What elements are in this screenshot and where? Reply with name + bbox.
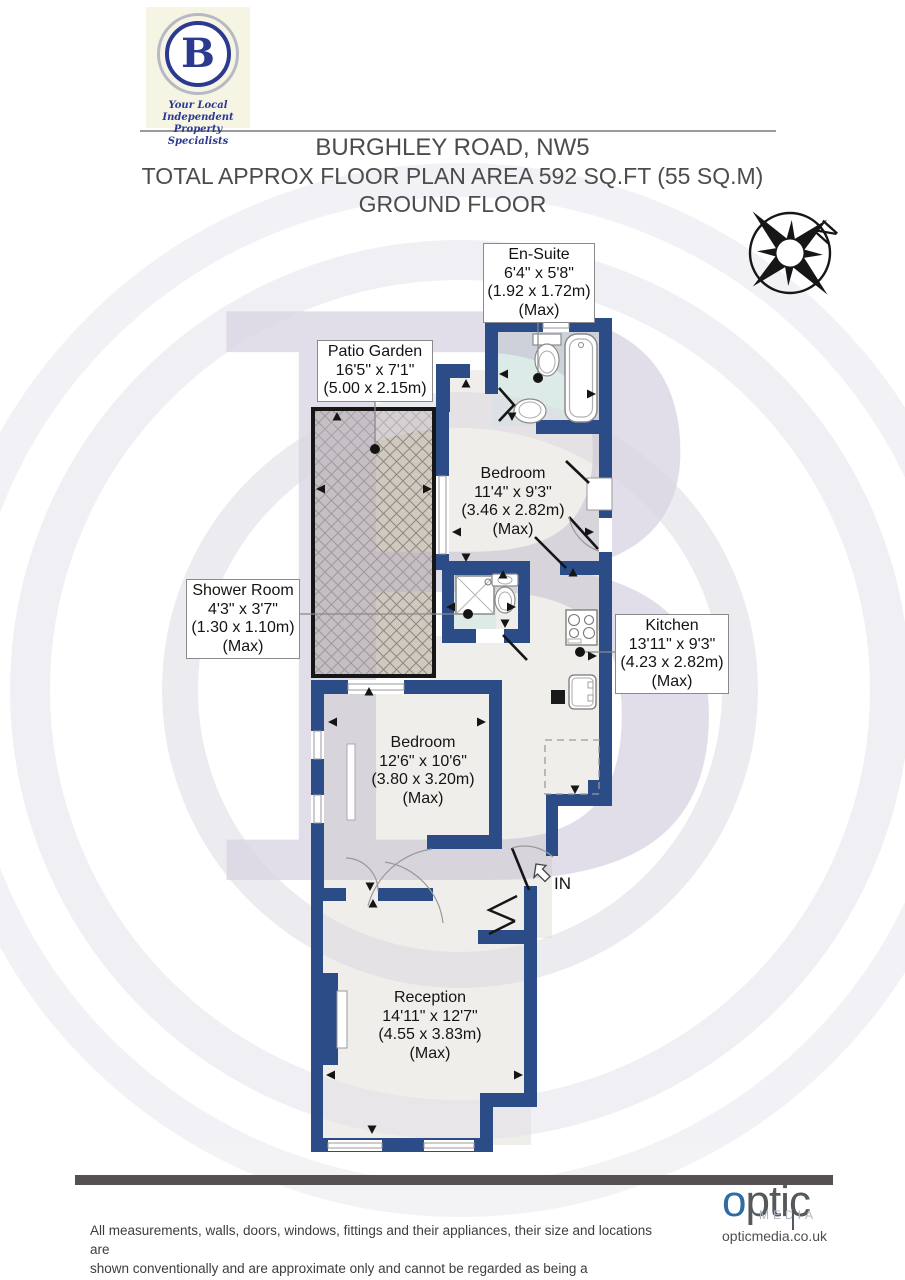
logo-inner-ring: B <box>165 21 231 87</box>
page-title: BURGHLEY ROAD, NW5 <box>0 133 905 162</box>
entrance-label: IN <box>554 874 571 894</box>
room-label-bedroom2: Bedroom 12'6" x 10'6" (3.80 x 3.20m) (Ma… <box>343 734 503 808</box>
boiler-symbol <box>551 690 565 704</box>
shower-tray-icon <box>456 576 494 614</box>
titles: BURGHLEY ROAD, NW5 TOTAL APPROX FLOOR PL… <box>0 133 905 218</box>
toilet-icon-shower-room <box>495 587 515 613</box>
room-label-patio: Patio Garden 16'5" x 7'1" (5.00 x 2.15m) <box>317 340 433 402</box>
disclaimer-text: All measurements, walls, doors, windows,… <box>90 1221 660 1280</box>
sink-icon-ensuite <box>514 399 546 423</box>
toilet-icon-ensuite <box>533 334 561 376</box>
room-label-bedroom1: Bedroom 11'4" x 9'3" (3.46 x 2.82m) (Max… <box>433 465 593 539</box>
room-label-shower-room: Shower Room 4'3" x 3'7" (1.30 x 1.10m) (… <box>186 579 300 659</box>
agency-logo: B Your Local Independent Property Specia… <box>146 7 250 128</box>
footer-divider-bar <box>75 1175 833 1185</box>
floor-label: GROUND FLOOR <box>0 190 905 218</box>
room-label-kitchen: Kitchen 13'11" x 9'3" (4.23 x 2.82m) (Ma… <box>615 614 729 694</box>
room-label-reception: Reception 14'11" x 12'7" (4.55 x 3.83m) … <box>350 989 510 1063</box>
optic-media-label: MEDIA <box>759 1208 852 1222</box>
logo-letter: B <box>181 34 215 74</box>
hob-icon <box>566 610 597 645</box>
optic-url: opticmedia.co.uk <box>722 1228 852 1244</box>
optic-logo-stem <box>792 1202 794 1230</box>
optic-media-logo: optic MEDIA opticmedia.co.uk <box>722 1182 852 1244</box>
room-label-ensuite: En-Suite 6'4" x 5'8" (1.92 x 1.72m) (Max… <box>483 243 595 323</box>
area-subtitle: TOTAL APPROX FLOOR PLAN AREA 592 SQ.FT (… <box>0 162 905 190</box>
logo-outer-ring: B <box>157 13 239 95</box>
kitchen-sink-icon <box>569 675 596 709</box>
bathtub-icon <box>565 334 597 422</box>
floorplan-page: B <box>0 0 905 1280</box>
